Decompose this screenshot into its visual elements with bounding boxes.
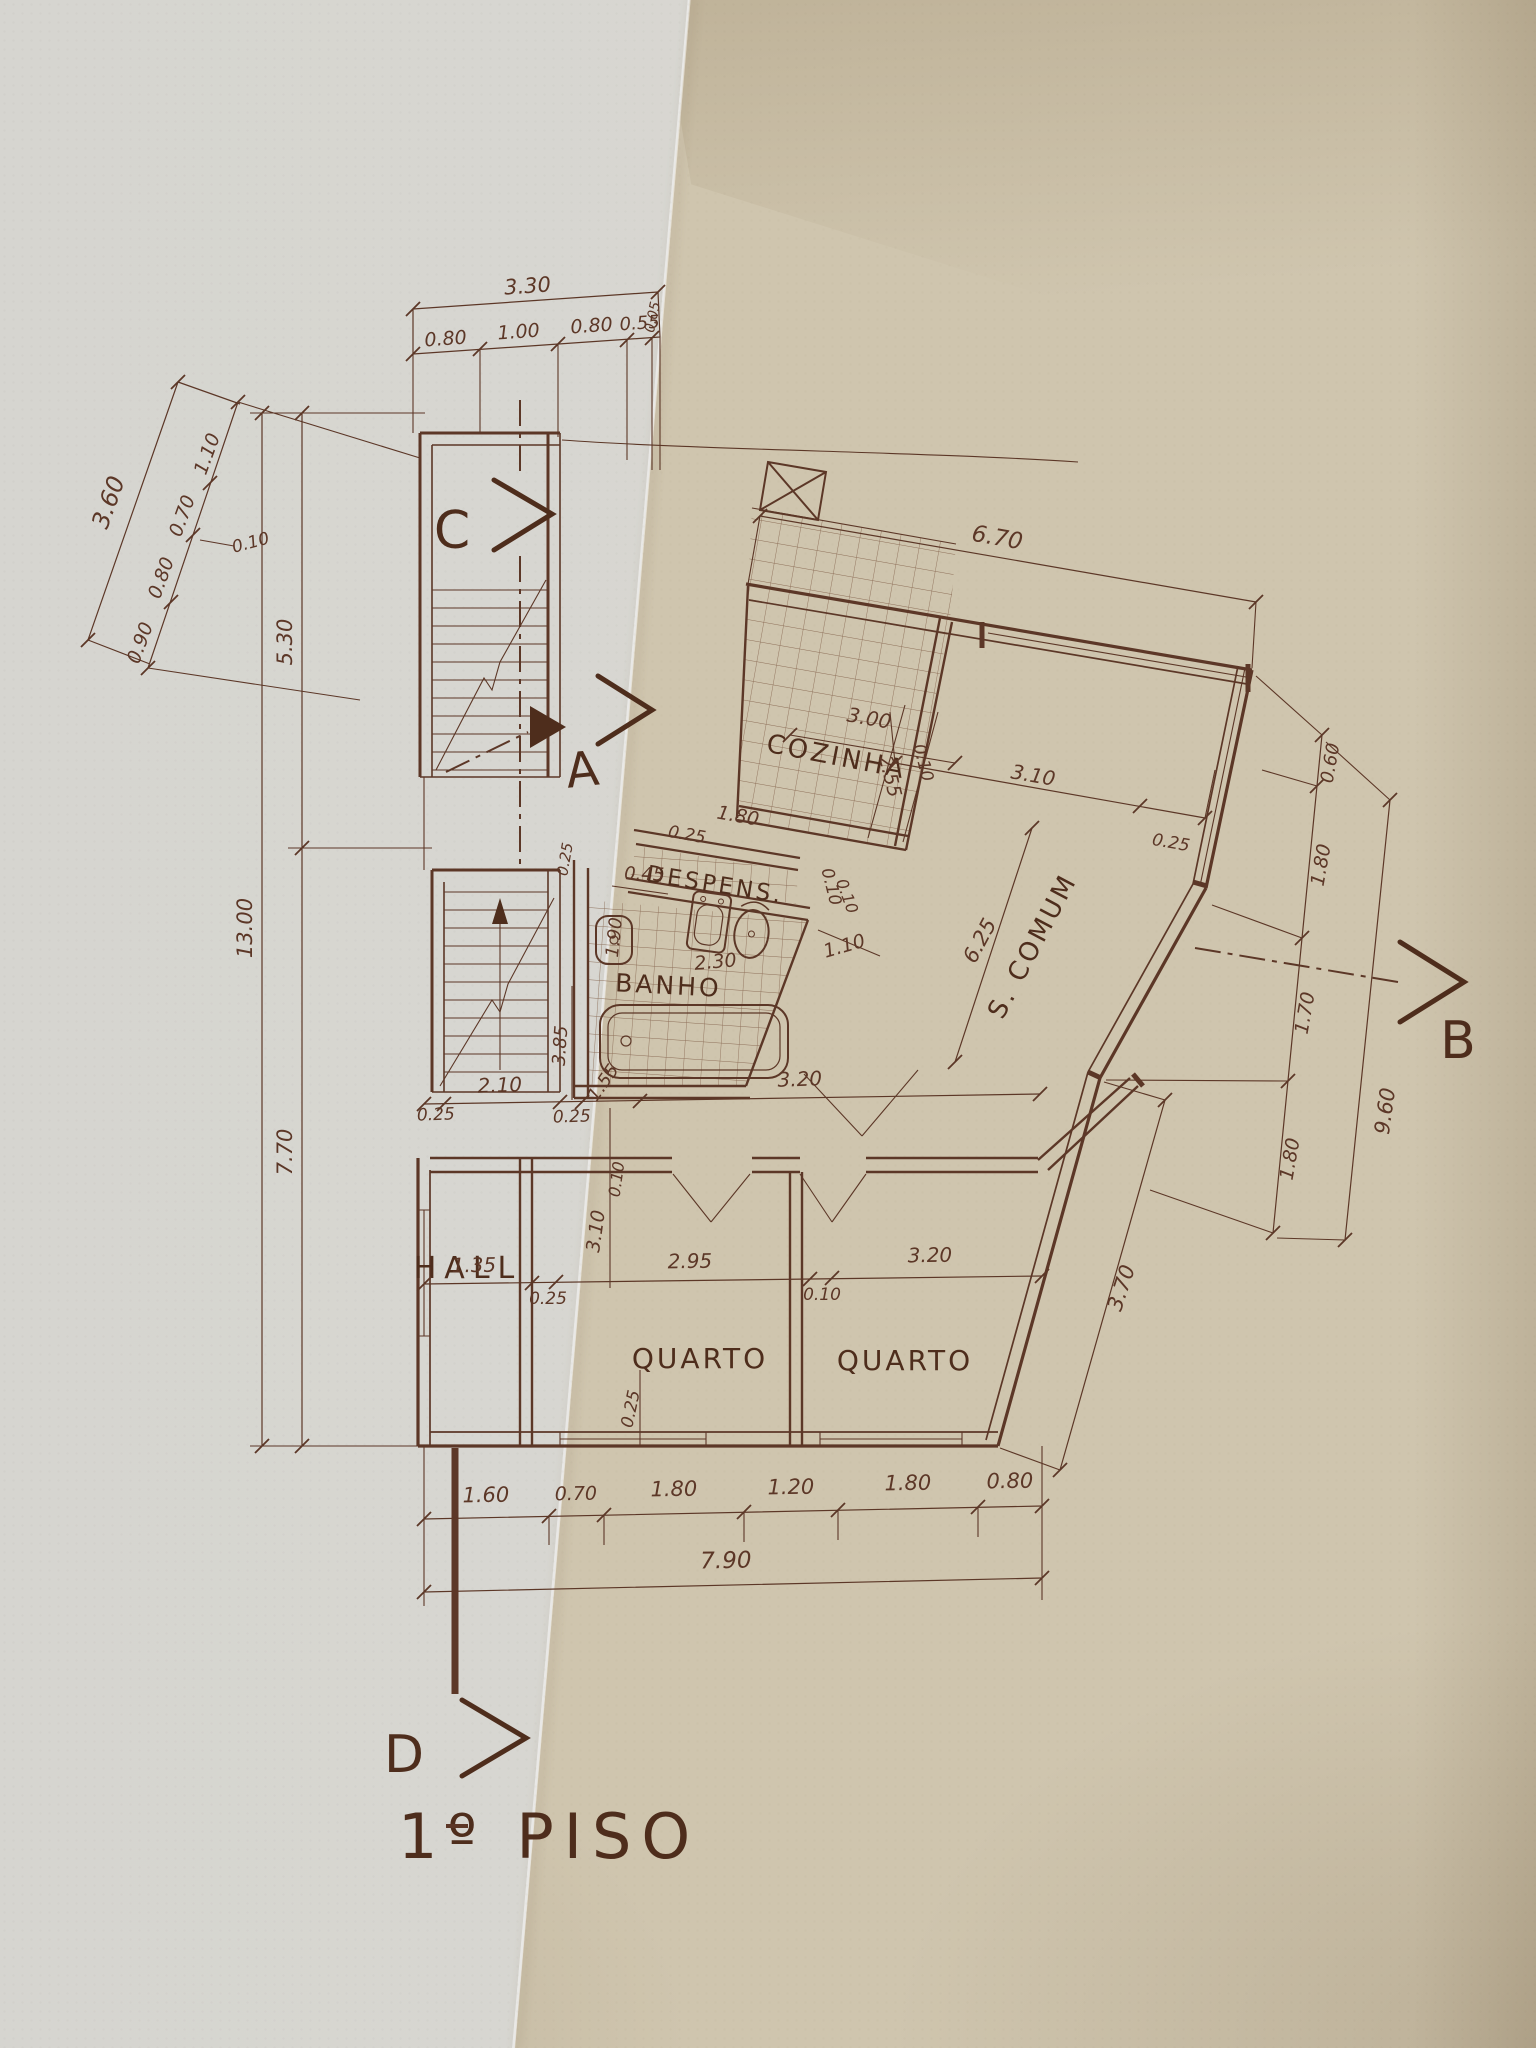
dim-bottom-3: 1.80 xyxy=(650,1477,697,1502)
dim-top-2: 1.00 xyxy=(497,320,541,345)
dim-top-3: 0.80 xyxy=(570,314,614,339)
dim-top-total: 3.30 xyxy=(503,272,551,299)
dim-top-group: 3.30 0.80 1.00 0.80 0.55 0.05 xyxy=(406,272,665,470)
dim-mid-v2: 0.10 xyxy=(605,1160,629,1198)
dim-sala-top-1: 3.10 xyxy=(1009,759,1057,790)
dim-bath-1: 0.45 xyxy=(624,863,665,885)
dim-mid-6: 3.85 xyxy=(549,1025,573,1066)
dim-left-diagonal-group: 3.60 1.10 0.70 0.10 0.80 0.90 xyxy=(81,375,420,700)
marker-c-label: C xyxy=(434,501,470,561)
dim-mid-5: 3.20 xyxy=(777,1066,822,1092)
dim-left-vertical-group: 13.00 5.30 7.70 xyxy=(233,406,432,1453)
dim-bath-3: 2.30 xyxy=(693,949,737,975)
dim-mid-1: 2.10 xyxy=(477,1072,522,1098)
floor-plan-drawing: C A B D COZINHA DESPENS. BANHO S. COMUM … xyxy=(0,0,1536,2048)
plan-title-group: 1º PISO xyxy=(398,1800,700,1873)
tiled-floors xyxy=(588,508,956,1086)
dim-bottom-2: 0.70 xyxy=(555,1483,598,1506)
dim-left-lower: 7.70 xyxy=(273,1129,297,1176)
dim-bottom-1: 1.60 xyxy=(462,1483,509,1508)
marker-b-arrow xyxy=(1400,942,1464,1022)
dim-right-lower: 3.70 xyxy=(1000,1082,1172,1477)
dim-right-3: 1.70 xyxy=(1291,990,1320,1035)
marker-d-arrow xyxy=(462,1700,526,1776)
dim-diag-total: 3.60 xyxy=(86,472,131,532)
dim-row-g1: 0.25 xyxy=(529,1289,567,1309)
dim-mid-3: 0.25 xyxy=(553,1106,592,1127)
marker-a-label: A xyxy=(563,741,602,800)
dim-top-1: 0.80 xyxy=(424,327,468,352)
marker-c-arrow xyxy=(494,480,552,550)
dim-diag-4: 0.80 xyxy=(144,554,179,601)
dim-right-total: 9.60 xyxy=(1370,1086,1400,1136)
room-quarto-left: QUARTO xyxy=(632,1342,768,1375)
dim-bottom-group: 1.60 0.70 1.80 1.20 1.80 0.80 7.90 xyxy=(417,1446,1049,1606)
vent-box xyxy=(760,462,826,520)
dim-diag-1: 1.10 xyxy=(190,430,225,477)
dim-mid-v1: 3.10 xyxy=(582,1209,610,1254)
dim-bath-2: 1.90 xyxy=(602,916,627,958)
marker-b-label: B xyxy=(1440,1011,1476,1071)
floorplan-photo: C A B D COZINHA DESPENS. BANHO S. COMUM … xyxy=(0,0,1536,2048)
dim-left-total: 13.00 xyxy=(233,898,257,958)
dim-top-right-total: 6.70 xyxy=(970,521,1025,555)
section-marker-b: B xyxy=(1195,942,1476,1071)
corridor-walls xyxy=(430,1070,1138,1446)
dim-row-g2: 0.10 xyxy=(803,1285,841,1305)
marker-a-arrow xyxy=(598,676,652,744)
dim-pantry-g: 0.25 xyxy=(666,822,707,848)
dim-bottom-6: 0.80 xyxy=(986,1469,1033,1494)
dim-diag-5: 0.90 xyxy=(123,619,158,666)
dim-row-3: 3.20 xyxy=(907,1243,952,1268)
bottom-left-walls xyxy=(418,1158,998,1446)
dim-row-2: 2.95 xyxy=(667,1249,712,1274)
dim-sala-top-2: 0.25 xyxy=(1150,830,1191,856)
terrace-line xyxy=(562,440,1078,462)
dim-left-upper: 5.30 xyxy=(273,619,297,666)
plan-title: 1º PISO xyxy=(398,1800,700,1873)
dim-bottom-total: 7.90 xyxy=(700,1548,752,1575)
section-marker-c: C xyxy=(434,400,552,866)
dim-right-lower: 3.70 xyxy=(1103,1262,1140,1314)
dim-top-5: 0.05 xyxy=(642,300,664,334)
dim-bottom-5: 1.80 xyxy=(884,1471,931,1496)
dim-mid-2: 0.25 xyxy=(417,1104,456,1125)
marker-d-label: D xyxy=(384,1725,424,1785)
dim-row-v: 0.25 xyxy=(617,1388,644,1429)
room-sala-comum: S. COMUM xyxy=(982,869,1083,1024)
dim-row-1: 1.35 xyxy=(451,1253,496,1278)
dim-right-4: 1.80 xyxy=(1276,1136,1305,1181)
dim-diag-3: 0.10 xyxy=(230,529,272,558)
dim-bottom-4: 1.20 xyxy=(767,1475,814,1500)
stairwell-mid xyxy=(424,777,560,1092)
room-quarto-right: QUARTO xyxy=(837,1344,973,1377)
stair-direction-arrowhead xyxy=(492,898,508,924)
